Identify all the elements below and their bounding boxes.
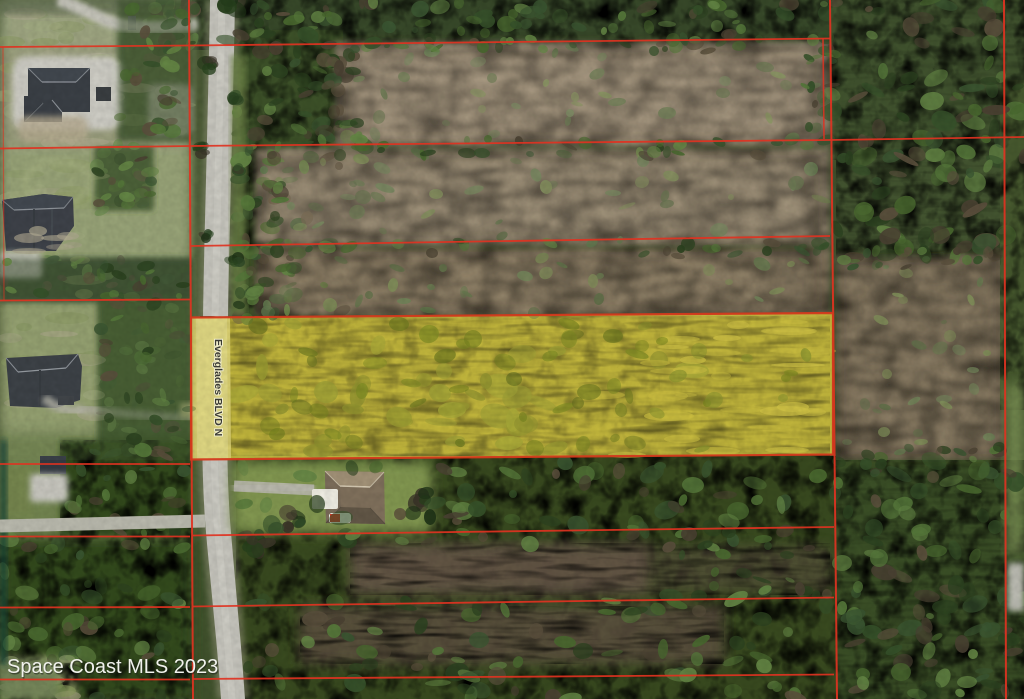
svg-text:Everglades BLVD N: Everglades BLVD N (212, 339, 224, 436)
svg-text:Space Coast MLS 2023: Space Coast MLS 2023 (7, 656, 218, 678)
